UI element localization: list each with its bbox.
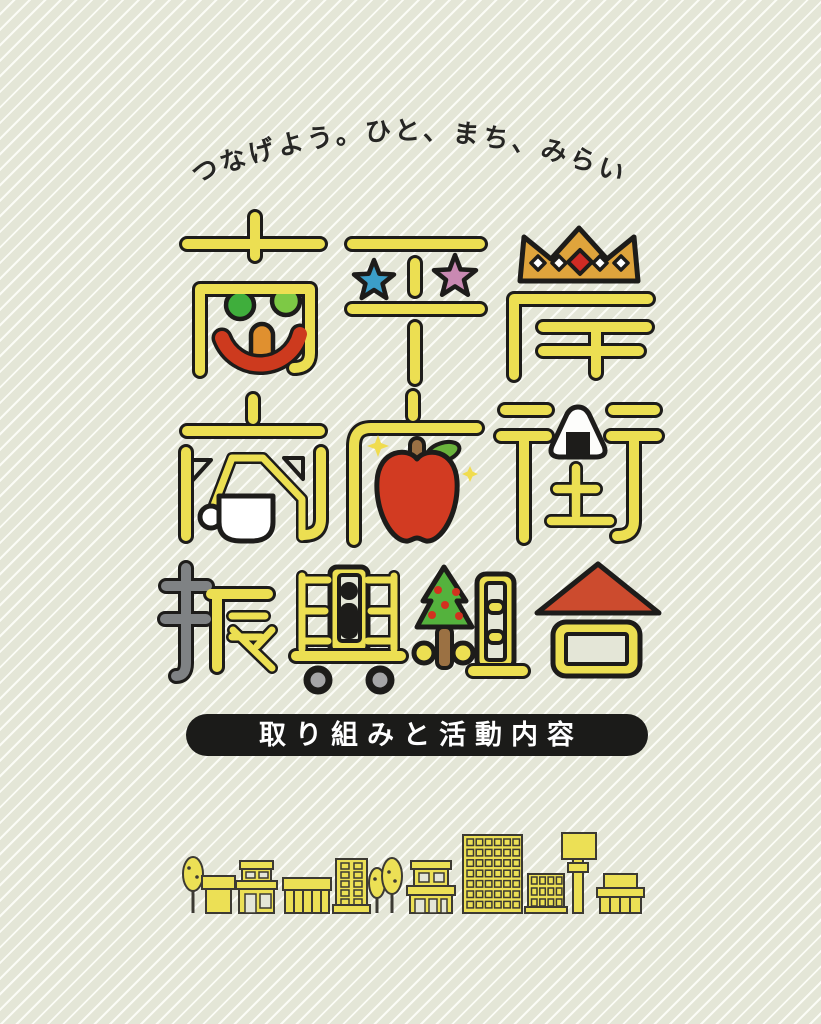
signboard-pole-icon [562,833,596,913]
poster: つなげよう。ひと、まち、みらい。 南平岸商店街振興組合 [0,0,821,1024]
apple-icon [377,438,462,541]
street-tree-icon [183,857,203,913]
logo-char-gai [501,407,657,538]
logo-char-hira [352,244,480,379]
tree-trunk-icon [437,627,452,668]
market-stalls-icon [283,878,331,913]
sparkle-icon [462,466,478,482]
logo-char-shou [186,399,321,541]
pink-star-icon [434,255,476,295]
smiley-left-eye-icon [226,291,254,319]
logo-char-ten [354,396,478,541]
riceball-icon [551,407,605,457]
riceball-nori-icon [566,432,590,457]
low-building-icon [597,874,644,913]
two-story-shop-icon [236,861,277,913]
crown-icon [520,228,638,281]
tagline: つなげよう。ひと、まち、みらい。 [0,0,632,190]
association-logo: 南平岸商店街振興組合 [165,217,659,691]
apartment-building-icon [525,874,567,913]
logo-char-shin [165,568,272,676]
small-shop-icon [202,876,235,913]
banner-label: 取り組みと活動内容 [259,719,583,750]
sparkle-icon [367,435,389,457]
person-icon [340,582,358,639]
logo-char-gishi [514,228,648,375]
logo-char-kumi [414,567,523,671]
logo-char-kou [296,567,401,691]
blue-star-icon [354,260,394,298]
tall-building-icon [333,859,370,913]
wheel-icon [369,669,391,691]
poster-art: つなげよう。ひと、まち、みらい。 南平岸商店街振興組合 [0,0,821,1024]
tagline-text: つなげよう。ひと、まち、みらい。 [0,0,632,190]
mid-building-icon [407,861,455,913]
logo-char-minami [187,217,320,371]
section-banner: 取り組みと活動内容 [186,714,648,756]
street-trees-icon [369,858,402,913]
office-building-icon [463,835,522,913]
logo-char-gou [537,564,659,676]
town-skyline [183,833,644,913]
house-roof-icon [537,564,659,613]
wheel-icon [307,669,329,691]
